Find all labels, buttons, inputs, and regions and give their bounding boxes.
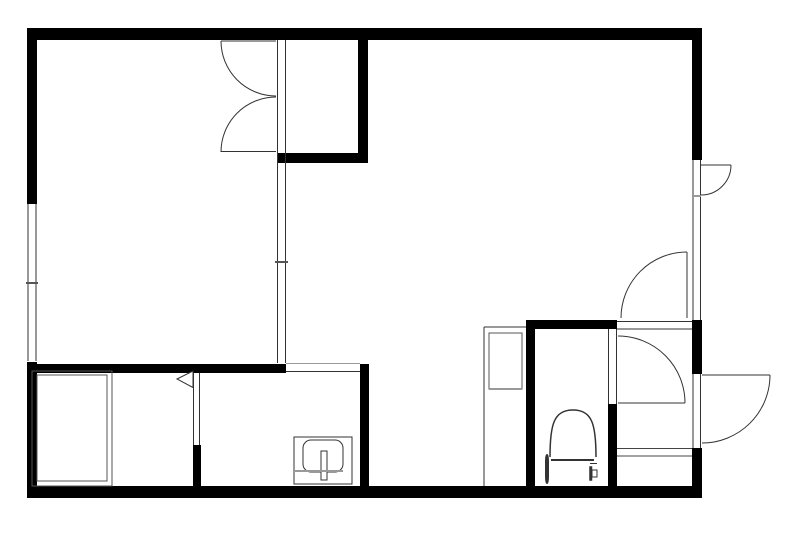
floor-plan xyxy=(0,0,800,534)
bottom-wall xyxy=(27,486,702,498)
washroom-east-wall xyxy=(360,364,369,486)
toilet-west-wall xyxy=(526,320,535,486)
floorplan-page xyxy=(0,0,800,534)
closet-south-wall xyxy=(277,153,368,163)
left-wall-upper xyxy=(27,28,37,204)
right-wall-lower xyxy=(692,448,702,498)
toilet-east-wall xyxy=(608,404,617,486)
washroom-north-wall xyxy=(27,364,286,373)
toilet-tank xyxy=(546,455,548,483)
toilet-north-wall xyxy=(526,320,617,329)
right-wall-mid xyxy=(692,320,702,374)
toilet-flush-button xyxy=(590,467,592,480)
bath-partition-wall xyxy=(193,445,201,486)
sink-faucet-lever xyxy=(321,451,327,480)
background xyxy=(0,0,800,534)
right-wall-upper xyxy=(692,28,702,160)
closet-east-wall xyxy=(358,40,368,163)
top-wall xyxy=(27,28,702,40)
